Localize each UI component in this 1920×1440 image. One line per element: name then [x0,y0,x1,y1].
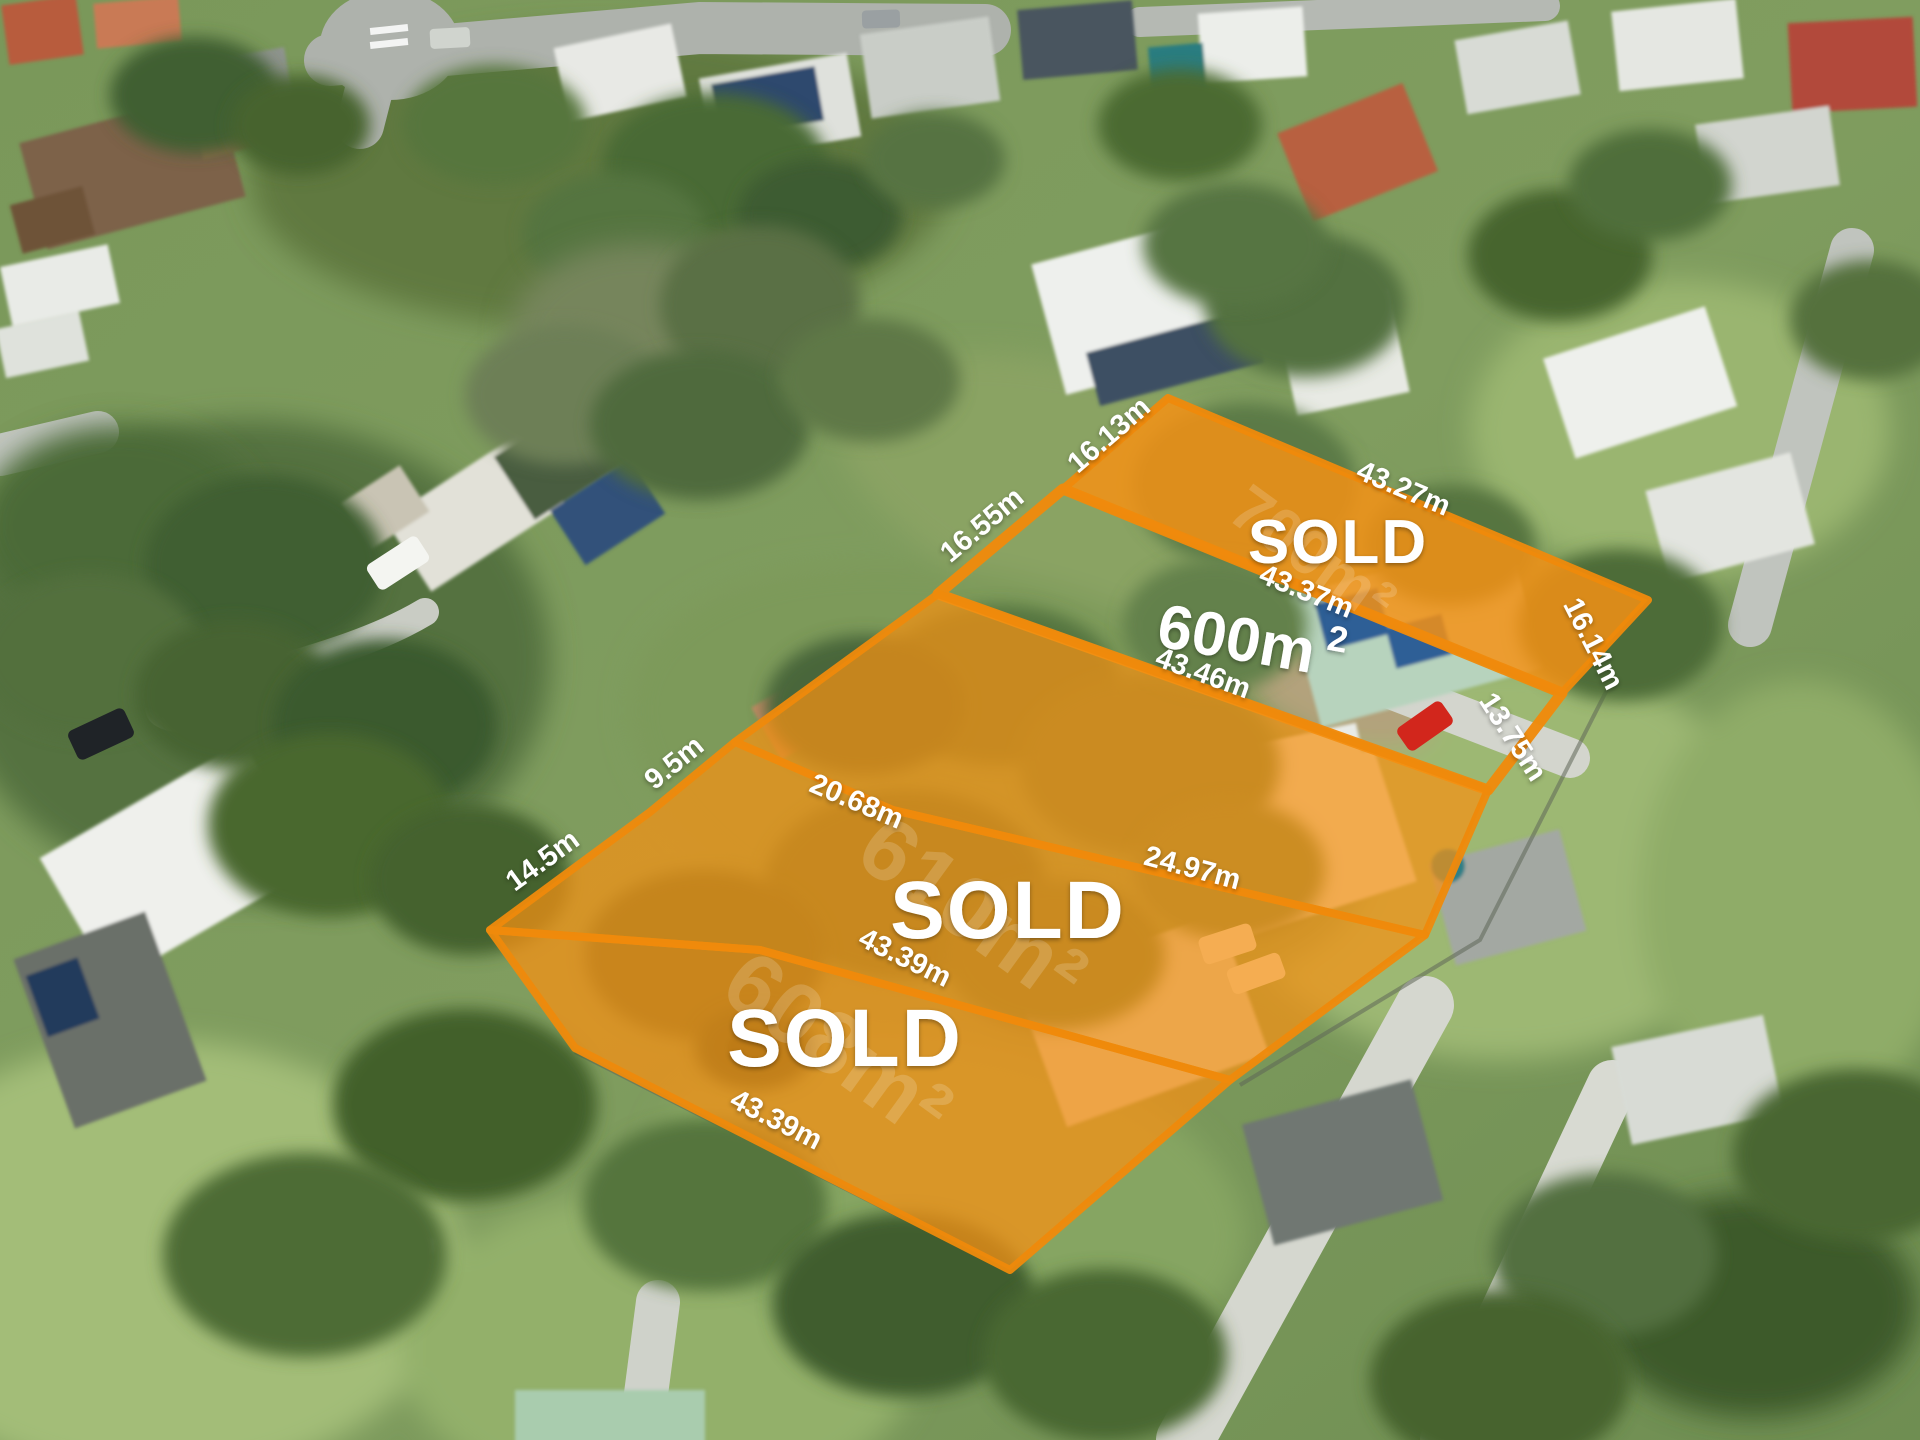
sold-label-middle: SOLD [890,865,1126,956]
sold-label-top: SOLD [1248,508,1428,577]
car-on-road [862,9,901,28]
car-on-road [430,27,471,49]
aerial-subdivision-photo: 700m² 610m² 608m² 16.13m 43.27m 16.55m 4… [0,0,1920,1440]
sold-label-bottom: SOLD [727,993,963,1084]
